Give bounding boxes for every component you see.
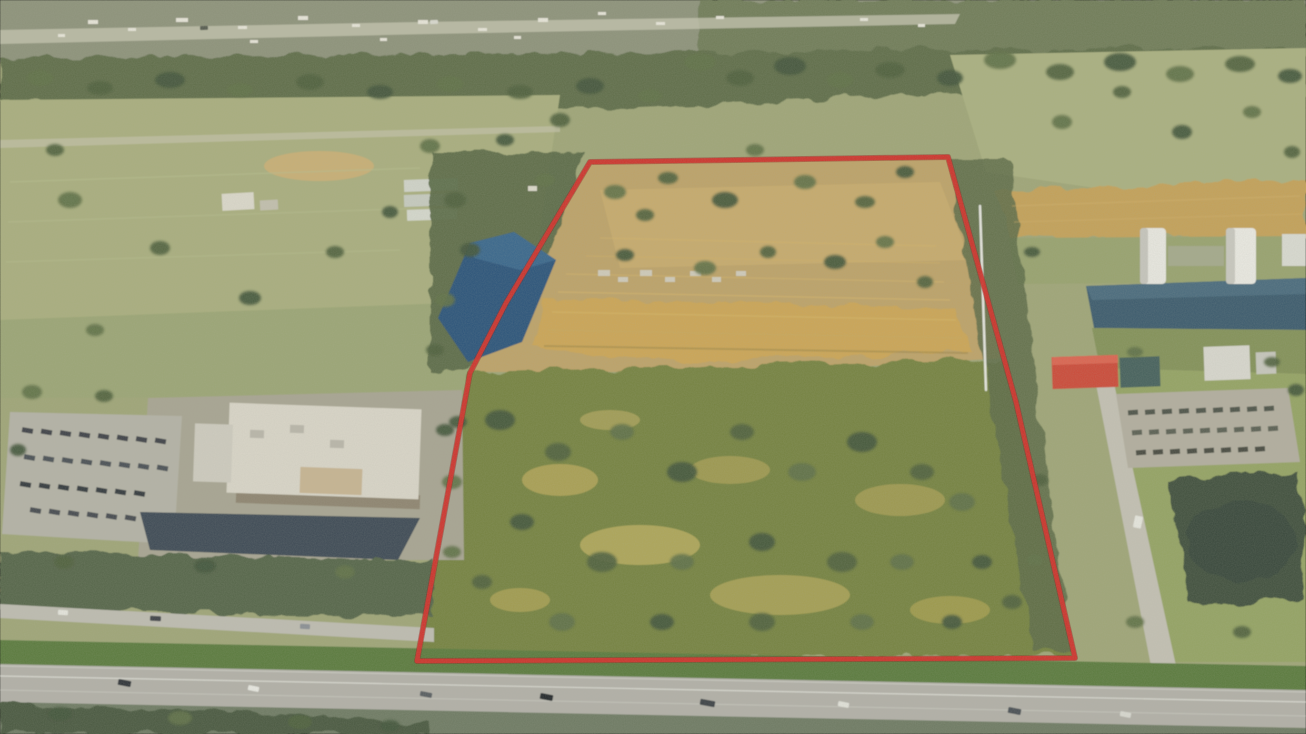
tree-cluster <box>444 192 466 208</box>
scene-layer <box>0 0 1306 734</box>
tree-cluster <box>380 720 400 732</box>
parked-car <box>1166 429 1176 435</box>
tree-cluster <box>749 613 775 631</box>
tree-cluster <box>550 113 570 127</box>
building-glint <box>598 270 610 276</box>
tree-cluster <box>496 134 514 146</box>
tree-cluster <box>667 462 697 482</box>
building-glint <box>58 34 65 37</box>
parked-car <box>1234 427 1244 433</box>
tree-cluster <box>1172 125 1192 139</box>
tree-cluster <box>58 192 82 208</box>
tree-cluster <box>296 74 324 90</box>
silo-1-shade <box>1140 228 1148 284</box>
tree-cluster <box>1113 86 1131 98</box>
parked-car <box>1179 408 1189 414</box>
tree-cluster <box>22 385 42 399</box>
tree-cluster <box>10 444 26 456</box>
tree-cluster <box>86 324 104 336</box>
tree-cluster <box>876 236 894 248</box>
parked-car <box>1204 448 1214 454</box>
tree-cluster <box>1026 554 1044 566</box>
parked-car <box>1128 410 1138 416</box>
tree-cluster <box>1284 146 1300 158</box>
silo-2-shade <box>1226 228 1235 284</box>
vehicle <box>150 616 161 622</box>
tree-cluster <box>890 554 914 570</box>
tree-cluster <box>824 255 846 269</box>
building-glint <box>736 271 746 276</box>
parked-car <box>1136 450 1146 456</box>
building-glint <box>128 28 136 31</box>
tree-cluster <box>472 575 492 589</box>
parked-car <box>1153 449 1163 455</box>
parked-car <box>1196 408 1206 414</box>
building-glint <box>665 277 675 282</box>
tree-cluster <box>168 711 192 725</box>
building-glint <box>528 186 537 191</box>
tree-cluster <box>788 463 816 481</box>
tree-cluster <box>326 246 344 258</box>
white-house <box>1203 345 1250 381</box>
parked-car <box>1132 430 1142 436</box>
tree-cluster <box>896 166 914 178</box>
building-glint <box>176 18 188 22</box>
parked-car <box>1170 449 1180 455</box>
farm-building <box>222 192 255 211</box>
tree-cluster <box>826 72 854 88</box>
aerial-photo-canvas <box>0 0 1306 734</box>
tree-cluster <box>746 144 764 156</box>
tree-cluster <box>827 552 857 572</box>
tree-cluster <box>46 144 64 156</box>
parked-car <box>1145 409 1155 415</box>
building-glint <box>640 270 652 276</box>
parked-car <box>1149 429 1159 435</box>
tree-cluster <box>150 241 170 255</box>
teal-roof-building <box>1119 356 1160 387</box>
tree-cluster <box>507 85 533 99</box>
tree-cluster <box>1046 64 1074 80</box>
tree-cluster <box>1104 53 1136 71</box>
brush-light-patch <box>490 588 550 612</box>
parked-car <box>1230 407 1240 413</box>
tree-cluster <box>847 432 877 452</box>
tree-cluster <box>684 53 716 71</box>
building-glint <box>712 277 721 282</box>
tree-cluster <box>726 70 754 86</box>
building-glint <box>618 277 628 282</box>
farm-building-2 <box>260 200 278 211</box>
parked-car <box>1247 406 1257 412</box>
tree-cluster <box>749 533 775 551</box>
tree-cluster <box>1024 247 1040 257</box>
tree-cluster <box>443 546 461 558</box>
tree-cluster <box>949 493 975 511</box>
brush-light-patch <box>522 464 598 496</box>
parked-car <box>1221 447 1231 453</box>
parked-car <box>1213 407 1223 413</box>
tree-cluster <box>638 89 662 103</box>
tree-cluster <box>1288 384 1304 396</box>
aerial-photo <box>0 0 1306 734</box>
building-glint <box>514 36 521 39</box>
tree-cluster <box>26 70 54 86</box>
tree-cluster <box>420 139 440 153</box>
tree-cluster <box>239 291 261 305</box>
parked-car <box>1200 428 1210 434</box>
tree-cluster <box>1002 595 1022 609</box>
parked-car <box>1264 406 1274 412</box>
tree-cluster <box>712 192 738 208</box>
commercial-building-tan-wing <box>300 467 363 495</box>
tree-cluster <box>636 209 654 221</box>
tree-cluster <box>576 78 604 94</box>
rooftop-unit <box>330 440 344 448</box>
tree-cluster <box>485 410 515 430</box>
building-glint <box>250 40 258 43</box>
tree-cluster <box>382 206 398 218</box>
tree-cluster <box>435 293 455 307</box>
right-lower-pond-dark <box>1185 500 1295 580</box>
parcel-upper-light <box>600 182 970 268</box>
parked-car <box>1251 426 1261 432</box>
tree-cluster <box>760 246 776 258</box>
tree-cluster <box>694 261 716 275</box>
tree-cluster <box>587 552 617 572</box>
vehicle <box>200 26 208 30</box>
tree-cluster <box>730 424 754 440</box>
tree-cluster <box>1233 626 1251 638</box>
tree-cluster <box>1127 347 1143 357</box>
building-glint <box>380 38 387 41</box>
far-right-white-building <box>1282 234 1306 266</box>
parked-car <box>1217 427 1227 433</box>
tree-cluster <box>1126 616 1144 628</box>
commercial-building-west-wing <box>193 423 233 482</box>
tree-cluster <box>48 707 72 721</box>
tree-cluster <box>972 555 992 569</box>
tree-cluster <box>545 443 571 461</box>
tree-cluster <box>535 173 555 187</box>
tree-cluster <box>54 555 74 569</box>
tree-cluster <box>917 276 933 288</box>
building-glint <box>352 24 360 27</box>
tree-cluster <box>436 76 464 92</box>
building-glint <box>478 28 487 31</box>
tree-cluster <box>1225 56 1255 72</box>
building-glint <box>238 26 247 29</box>
vehicle <box>430 20 438 24</box>
tree-cluster <box>937 70 963 86</box>
building-glint <box>598 12 606 15</box>
tree-cluster <box>604 185 626 199</box>
vehicle <box>300 624 310 630</box>
tree-cluster <box>426 344 444 356</box>
dirt-arena <box>264 151 374 181</box>
parked-car <box>1162 409 1172 415</box>
tree-cluster <box>610 424 634 440</box>
tree-cluster <box>774 57 806 75</box>
tree-cluster <box>658 172 678 184</box>
rooftop-unit <box>290 425 304 433</box>
tree-cluster <box>1052 115 1072 129</box>
tree-cluster <box>288 715 312 729</box>
brush-light-patch <box>710 575 850 615</box>
tree-cluster <box>1278 69 1302 83</box>
top-urban-right-trees <box>700 0 1306 56</box>
parked-car <box>1268 426 1278 432</box>
building-glint <box>860 18 868 21</box>
tree-cluster <box>227 83 253 97</box>
building-glint <box>298 16 308 20</box>
building-glint <box>538 18 548 22</box>
tree-cluster <box>855 196 875 208</box>
tree-cluster <box>1166 66 1194 82</box>
tree-cluster <box>984 51 1016 69</box>
tree-cluster <box>910 464 934 480</box>
building-glint <box>716 16 724 19</box>
tree-cluster <box>367 85 393 99</box>
tree-cluster <box>670 554 694 570</box>
tree-cluster <box>95 390 113 402</box>
tree-cluster <box>194 559 216 573</box>
brush-light-patch <box>690 456 770 484</box>
tree-cluster <box>616 249 634 261</box>
building-glint <box>656 22 665 25</box>
tree-cluster <box>460 243 480 257</box>
tree-cluster <box>850 614 874 630</box>
tree-cluster <box>942 615 962 629</box>
brush-light-patch <box>855 484 945 516</box>
building-glint <box>418 20 428 24</box>
tree-cluster <box>875 62 905 78</box>
tree-cluster <box>794 175 816 189</box>
tree-cluster <box>87 81 113 95</box>
parked-car <box>1238 447 1248 453</box>
parked-car <box>1255 446 1265 452</box>
tree-cluster <box>1264 357 1280 367</box>
tree-cluster <box>335 565 355 579</box>
silo-connector <box>1168 246 1224 266</box>
building-glint <box>918 24 925 27</box>
tree-cluster <box>549 613 575 631</box>
parked-car <box>1183 428 1193 434</box>
tree-cluster <box>1243 106 1261 118</box>
vehicle <box>58 610 68 616</box>
tree-cluster <box>510 514 534 530</box>
tree-cluster <box>155 72 185 88</box>
tree-cluster <box>650 614 674 630</box>
parked-car <box>1187 448 1197 454</box>
building-glint <box>88 20 98 24</box>
rooftop-unit <box>250 430 264 438</box>
